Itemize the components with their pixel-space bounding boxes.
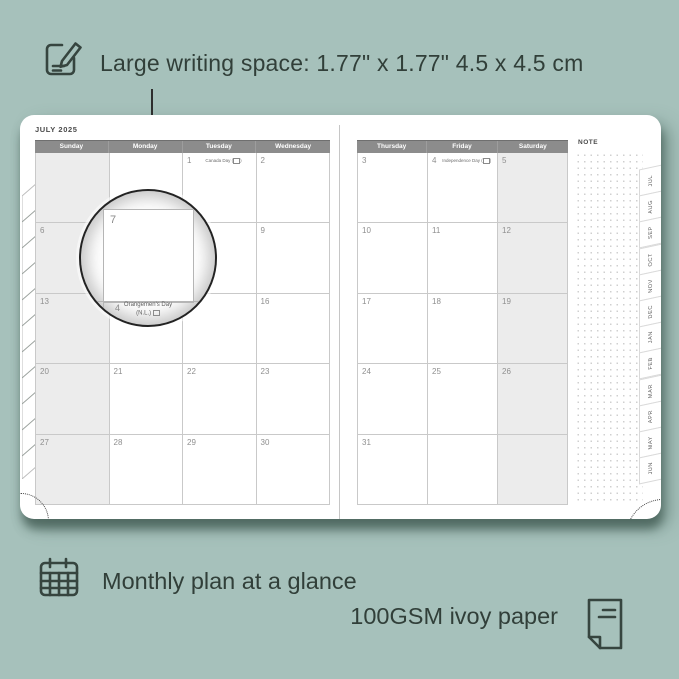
calendar-cell-16: 16: [257, 294, 331, 364]
holiday-flag-chip: [233, 158, 240, 164]
calendar-cell-10: 10: [358, 223, 428, 293]
note-pencil-icon: [38, 34, 84, 82]
day-number: 23: [261, 367, 270, 376]
calendar-cell-17: 17: [358, 294, 428, 364]
day-number: 30: [261, 438, 270, 447]
day-number: 28: [114, 438, 123, 447]
day-number: 20: [40, 367, 49, 376]
calendar-cell-12: 12: [498, 223, 568, 293]
day-number: 25: [432, 367, 441, 376]
day-number: 26: [502, 367, 511, 376]
day-number: 16: [261, 297, 270, 306]
calendar-cell-11: 11: [428, 223, 498, 293]
holiday-flag-chip: [153, 310, 160, 316]
calendar-cell-18: 18: [428, 294, 498, 364]
calendar-cell-empty: [498, 435, 568, 505]
calendar-cell-22: 22: [183, 364, 257, 434]
calendar-cell-31: 31: [358, 435, 428, 505]
magnified-holiday-text: Orangemen's Day (N.L.): [81, 302, 215, 318]
calendar-cell-24: 24: [358, 364, 428, 434]
writing-space-annotation: Large writing space: 1.77" x 1.77" 4.5 x…: [100, 50, 583, 77]
magnified-day-cell: 7: [103, 209, 194, 303]
day-number: 13: [40, 297, 49, 306]
calendar-cells: 34Independence Day ()5101112171819242526…: [357, 153, 568, 505]
day-number: 3: [362, 156, 366, 165]
calendar-cell-empty: [428, 435, 498, 505]
calendar-cell-21: 21: [110, 364, 184, 434]
calendar-cell-26: 26: [498, 364, 568, 434]
holiday-label: Independence Day (): [436, 158, 497, 164]
day-header-monday: Monday: [109, 141, 183, 153]
magnified-day-number: 7: [110, 214, 116, 226]
day-number: 22: [187, 367, 196, 376]
day-number: 5: [502, 156, 506, 165]
weekday-header-row: SundayMondayTuesdayWednesday: [35, 140, 330, 153]
calendar-cell-9: 9: [257, 223, 331, 293]
day-number: 11: [432, 226, 440, 235]
month-tab-index: JULAUGSEPOCTNOVDECJANFEBMARAPRMAYJUN: [639, 168, 660, 482]
note-column-label: NOTE: [578, 139, 598, 146]
month-title: JULY 2025: [35, 125, 78, 134]
day-number: 17: [362, 297, 371, 306]
calendar-cell-4: 4Independence Day (): [428, 153, 498, 223]
day-number: 9: [261, 226, 265, 235]
calendar-cell-2: 2: [257, 153, 331, 223]
day-header-sunday: Sunday: [35, 141, 109, 153]
day-number: 6: [40, 226, 44, 235]
day-header-friday: Friday: [427, 141, 497, 153]
day-number: 29: [187, 438, 196, 447]
paper-sheet-icon: [579, 596, 631, 652]
calendar-cell-27: 27: [36, 435, 110, 505]
day-number: 2: [261, 156, 265, 165]
day-header-wednesday: Wednesday: [256, 141, 330, 153]
paper-annotation: 100GSM ivoy paper: [0, 603, 558, 630]
day-number: 27: [40, 438, 49, 447]
holiday-flag-chip: [483, 158, 490, 164]
day-number: 31: [362, 438, 371, 447]
day-number: 10: [362, 226, 371, 235]
day-number: 24: [362, 367, 371, 376]
calendar-grid-right: ThursdayFridaySaturday 34Independence Da…: [357, 140, 568, 505]
calendar-cell-5: 5: [498, 153, 568, 223]
calendar-cell-20: 20: [36, 364, 110, 434]
day-number: 12: [502, 226, 511, 235]
calendar-cell-23: 23: [257, 364, 331, 434]
calendar-cell-30: 30: [257, 435, 331, 505]
day-number: 19: [502, 297, 511, 306]
magnifier-circle: 7 4 Orangemen's Day (N.L.): [79, 189, 217, 327]
day-number: 18: [432, 297, 441, 306]
day-number: 21: [114, 367, 123, 376]
holiday-label: Canada Day (): [191, 158, 255, 164]
day-header-thursday: Thursday: [357, 141, 427, 153]
monthly-plan-annotation: Monthly plan at a glance: [102, 568, 357, 595]
calendar-cell-29: 29: [183, 435, 257, 505]
page-spine-line: [339, 125, 340, 519]
calendar-cell-28: 28: [110, 435, 184, 505]
note-dot-grid: [575, 152, 643, 504]
calendar-cell-3: 3: [358, 153, 428, 223]
calendar-cell-25: 25: [428, 364, 498, 434]
day-header-tuesday: Tuesday: [183, 141, 257, 153]
calendar-grid-left: SundayMondayTuesdayWednesday 1Canada Day…: [35, 140, 330, 505]
calendar-cell-19: 19: [498, 294, 568, 364]
month-tab-jun: JUN: [639, 453, 661, 485]
day-header-saturday: Saturday: [498, 141, 568, 153]
weekday-header-row: ThursdayFridaySaturday: [357, 140, 568, 153]
calendar-icon: [36, 554, 82, 602]
